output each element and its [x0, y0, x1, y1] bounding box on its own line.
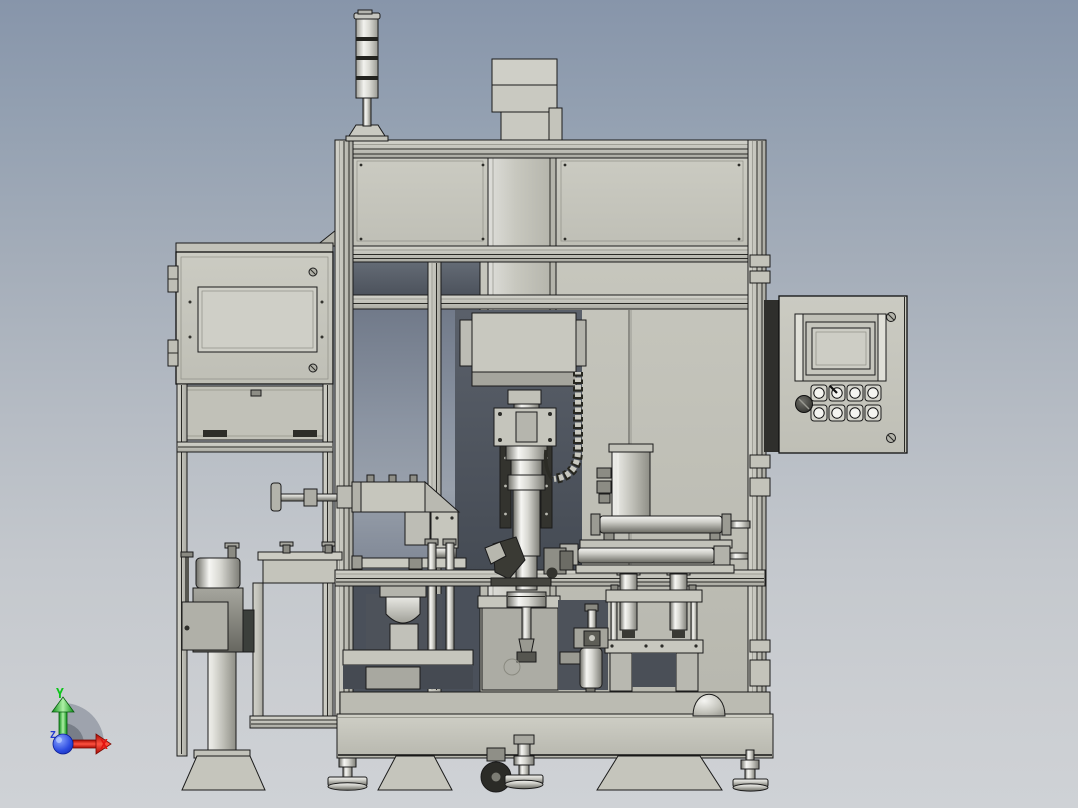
right-control-panel — [764, 296, 907, 453]
hmi-screen — [198, 287, 317, 352]
panel-latch — [251, 390, 261, 396]
pedestal-foot — [597, 756, 722, 790]
machine-render: Z Y X — [0, 0, 1078, 808]
pedestal-foot — [182, 756, 265, 790]
press-head — [472, 313, 576, 372]
handwheel-disc — [271, 483, 281, 511]
tower-light-separator — [356, 76, 378, 80]
machine-base — [337, 692, 773, 758]
feeder-box — [182, 602, 228, 650]
drum-top — [196, 558, 240, 588]
control-screen — [812, 328, 870, 369]
tower-light-separator — [356, 56, 378, 60]
vent — [293, 430, 317, 437]
pedestal-foot — [378, 756, 452, 790]
handwheel-slide — [271, 482, 363, 512]
signal-tower-light — [346, 10, 388, 141]
spindle-shaft — [506, 446, 547, 460]
axis-triad[interactable]: Z Y X — [50, 687, 111, 754]
axis-x-label: X — [100, 738, 108, 753]
cad-viewport[interactable]: Z Y X — [0, 0, 1078, 808]
tower-light-separator — [356, 37, 378, 41]
cylinder-body — [600, 516, 722, 533]
hopper-chute — [386, 597, 420, 623]
pedestal-column — [208, 652, 236, 756]
x-axis-arrow — [73, 740, 98, 748]
cylinder-body — [578, 548, 714, 563]
leveling-foot — [328, 758, 367, 790]
axis-y-label: Y — [56, 687, 64, 702]
vent — [203, 430, 227, 437]
z-axis-origin — [53, 734, 73, 754]
